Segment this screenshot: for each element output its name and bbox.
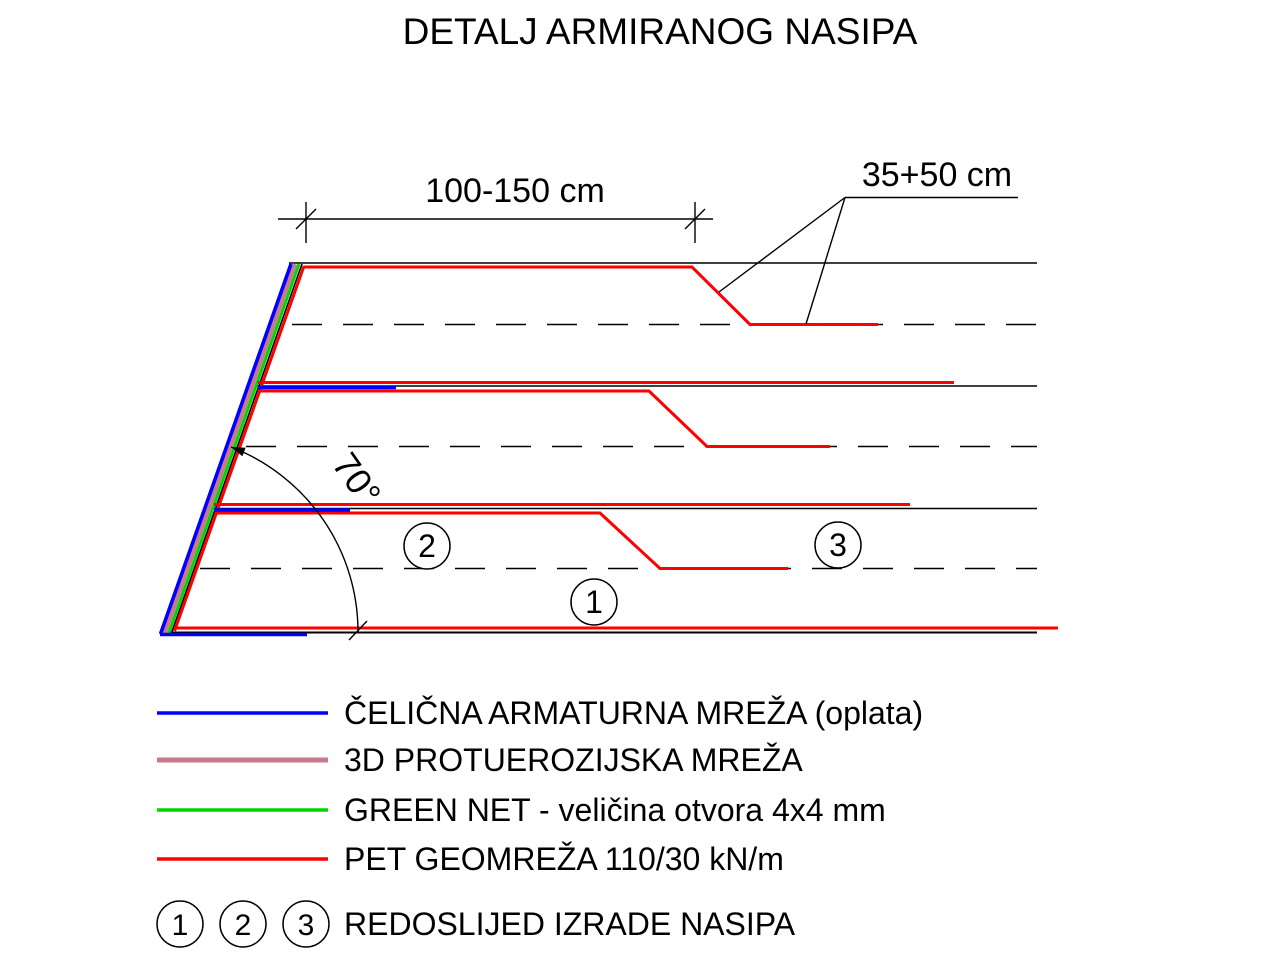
steel-mesh-anchors bbox=[160, 388, 396, 635]
page-title: DETALJ ARMIRANOG NASIPA bbox=[403, 11, 918, 52]
marker-2-label: 2 bbox=[418, 528, 436, 564]
anchor-dimension-label: 35+50 cm bbox=[862, 156, 1012, 194]
top-dimension-label: 100-150 cm bbox=[425, 172, 605, 210]
geogrid-top-anchor-layer-1 bbox=[216, 513, 788, 569]
legend-pet-geogrid-label: PET GEOMREŽA 110/30 kN/m bbox=[344, 841, 784, 877]
legend-green-net-label: GREEN NET - veličina otvora 4x4 mm bbox=[344, 792, 886, 828]
legend-sequence-number-3: 3 bbox=[298, 909, 315, 942]
slope-angle: 70° bbox=[231, 445, 389, 640]
slope-angle-label: 70° bbox=[324, 445, 389, 513]
embankment-detail-drawing: DETALJ ARMIRANOG NASIPA bbox=[0, 0, 1280, 960]
layer-boundaries bbox=[168, 263, 1037, 633]
geogrid-top-anchor-layer-2 bbox=[260, 391, 830, 447]
drawing-canvas: DETALJ ARMIRANOG NASIPA bbox=[0, 0, 1280, 960]
marker-3-label: 3 bbox=[829, 527, 847, 563]
marker-1-label: 1 bbox=[585, 584, 603, 620]
leader-line-2 bbox=[806, 198, 845, 325]
geogrid-top-anchor-layer-3 bbox=[304, 267, 878, 325]
geogrid-lines bbox=[175, 266, 1059, 631]
legend-erosion-mesh-label: 3D PROTUEROZIJSKA MREŽA bbox=[344, 742, 803, 778]
legend-steel-mesh-label: ČELIČNA ARMATURNA MREŽA (oplata) bbox=[344, 695, 923, 731]
legend-sequence-number-2: 2 bbox=[235, 909, 252, 942]
legend-sequence-row: 1 2 3 REDOSLIJED IZRADE NASIPA bbox=[157, 901, 796, 947]
sequence-markers: 1 2 3 bbox=[404, 522, 861, 625]
erosion-mesh-face-line bbox=[165, 264, 296, 634]
steel-mesh-face-line bbox=[161, 264, 292, 634]
leader-line-1 bbox=[719, 198, 845, 293]
slope-facing-meshes bbox=[161, 264, 300, 634]
anchor-length-label: 35+50 cm bbox=[719, 156, 1018, 324]
legend: ČELIČNA ARMATURNA MREŽA (oplata) 3D PROT… bbox=[157, 695, 923, 947]
legend-sequence-label: REDOSLIJED IZRADE NASIPA bbox=[344, 906, 796, 942]
top-dimension: 100-150 cm bbox=[278, 172, 713, 243]
legend-sequence-number-1: 1 bbox=[172, 909, 189, 942]
